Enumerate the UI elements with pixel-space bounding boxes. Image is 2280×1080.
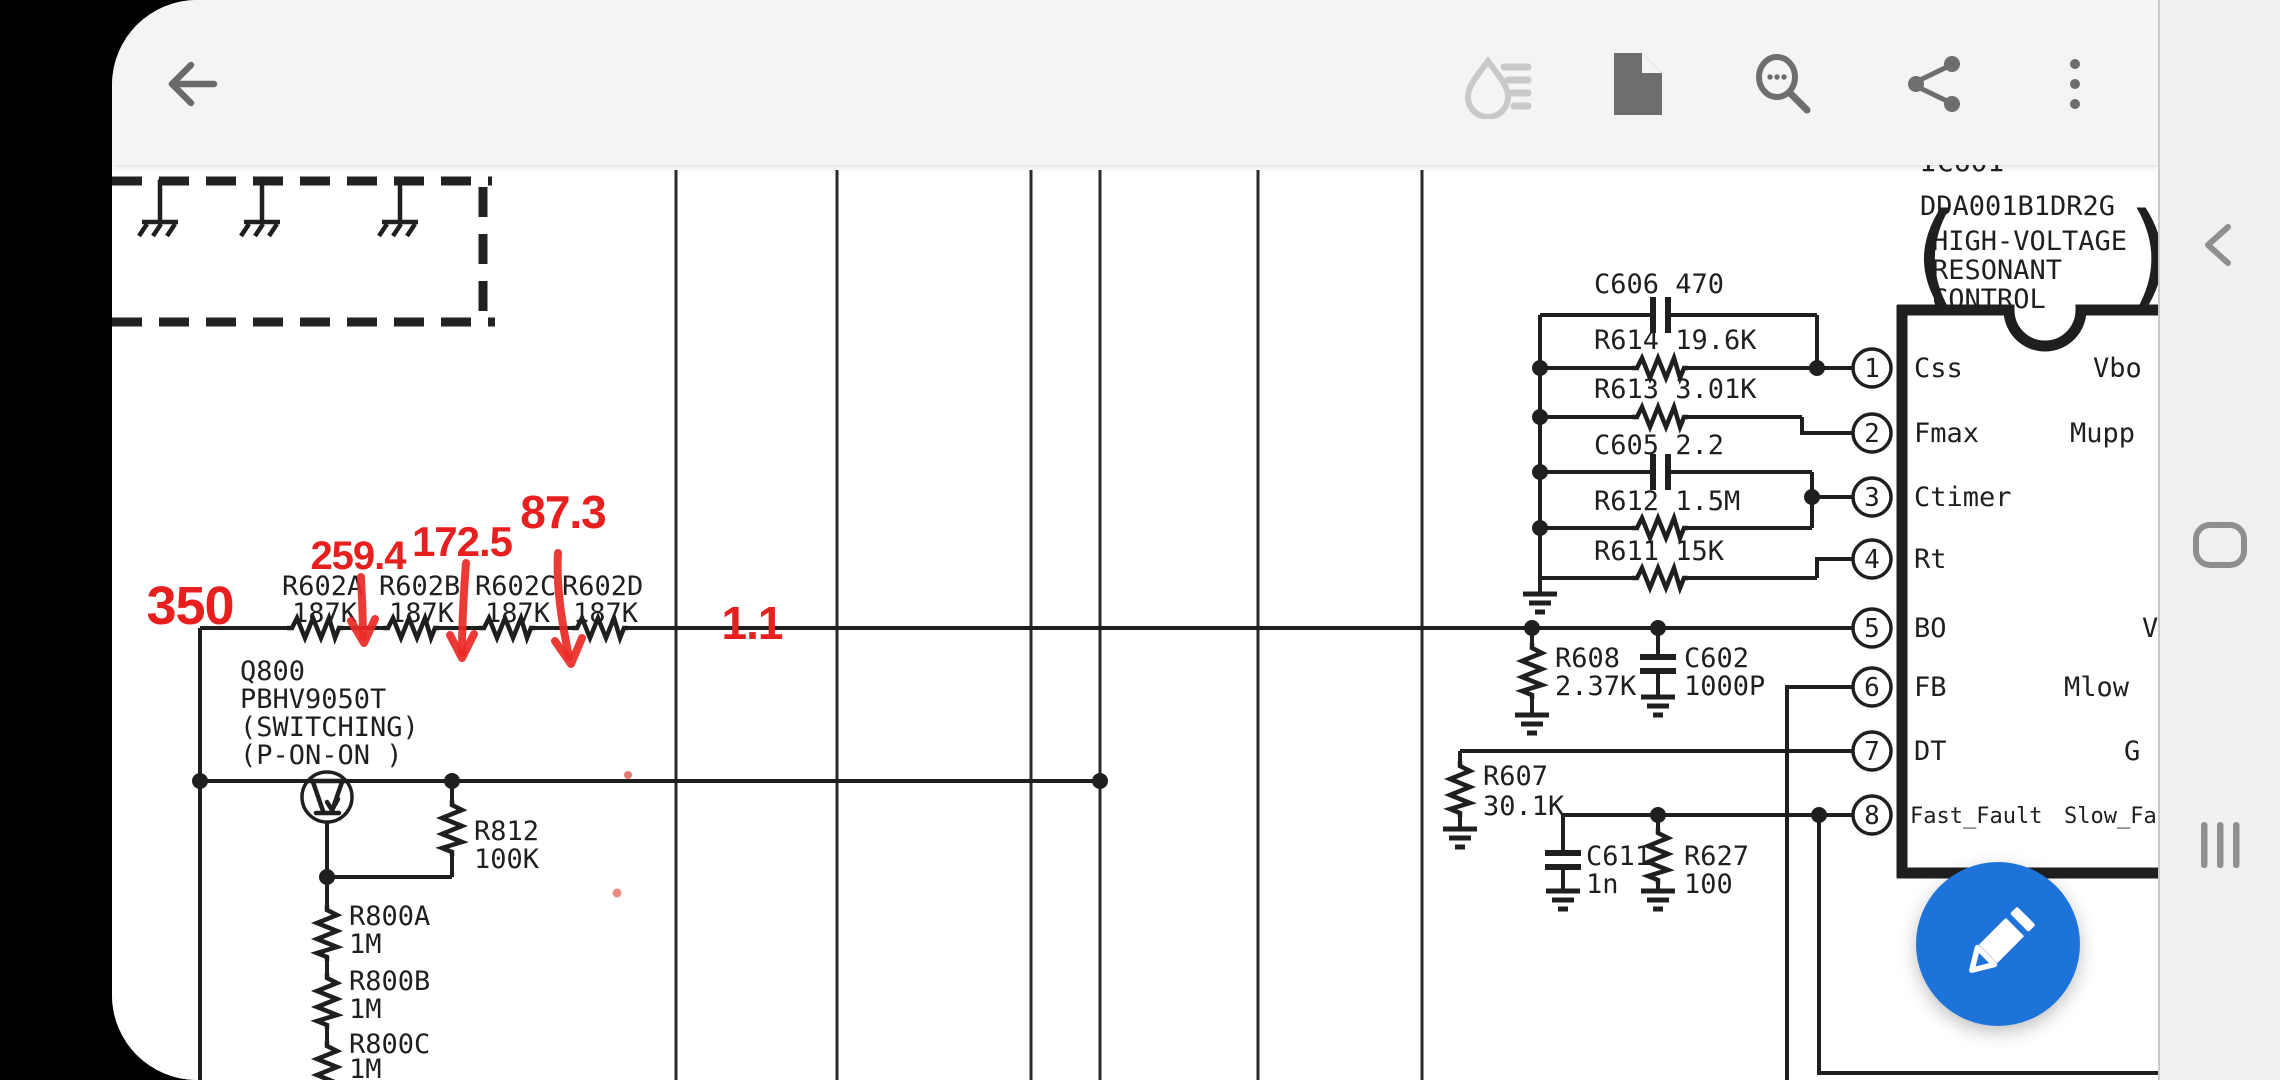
pin-4-number: 4: [1864, 545, 1880, 575]
ink-drop-icon: [1464, 49, 1534, 119]
pin-1-number: 1: [1864, 354, 1880, 384]
ground-icon: [1546, 891, 1580, 909]
search-icon: [1751, 52, 1815, 116]
r607-name: R607: [1483, 761, 1548, 792]
r800a-value: 1M: [349, 929, 382, 960]
r602a-value: 187K: [292, 598, 358, 629]
nav-back-button[interactable]: [2160, 185, 2280, 305]
ground-icon: [1443, 829, 1477, 847]
pin-7-name: DT: [1914, 736, 1947, 767]
more-vertical-icon: [2048, 53, 2102, 115]
pin-1-name: Css: [1914, 353, 1963, 384]
pin-5-number: 5: [1864, 614, 1880, 644]
pencil-icon: [1953, 899, 2043, 989]
red-value-1-1: 1.1: [722, 597, 783, 649]
pin-2-number: 2: [1864, 419, 1880, 449]
ic601-desc-3: CONTROL: [1932, 284, 2046, 315]
red-value-172: 172.5: [412, 518, 513, 565]
nav-back-icon: [2194, 219, 2246, 271]
ic601-header: IC601 DDA001B1DR2G ( ) HIGH-VOLTAGE RESO…: [1900, 165, 2160, 323]
r627-value: 100: [1684, 869, 1733, 900]
q800-type: (P-ON-ON ): [240, 740, 403, 771]
c606-label: C606 470: [1594, 269, 1724, 300]
ground-icon: [1523, 594, 1557, 612]
red-arrow-1: [361, 577, 363, 637]
system-nav-bar: [2158, 0, 2280, 1080]
overflow-menu-button[interactable]: [2027, 36, 2123, 132]
r800c-value: 1M: [349, 1054, 382, 1080]
r602d-value: 187K: [573, 598, 639, 629]
chassis-ground-icon: [379, 222, 418, 236]
pin-5-right-label: V: [2142, 613, 2158, 644]
r800b-name: R800B: [349, 966, 430, 997]
pin-8-name: Fast_Fault: [1910, 804, 2042, 829]
r607-value: 30.1K: [1483, 791, 1565, 822]
ic601-ref: IC601: [1920, 165, 2004, 178]
pin-7-right-label: G: [2124, 736, 2140, 767]
dashed-shield-box: [112, 181, 495, 322]
chassis-ground-icon: [241, 222, 280, 236]
red-arrow-2: [462, 563, 466, 653]
pin-6-right-label: Mlow: [2064, 672, 2130, 703]
r607-group: R607 30.1K: [1443, 751, 1853, 847]
red-pen-dot: [624, 771, 632, 779]
schematic-grid-lines: [676, 170, 1422, 1080]
q800-ref: Q800: [240, 656, 305, 687]
pin-6-number: 6: [1864, 673, 1880, 703]
back-button[interactable]: [145, 36, 241, 132]
c611-value: 1n: [1586, 869, 1619, 900]
r613-label: R613 3.01K: [1594, 374, 1757, 405]
q800-function: (SWITCHING): [240, 712, 419, 743]
pin-5-name: BO: [1914, 613, 1947, 644]
c602-value: 1000P: [1684, 671, 1765, 702]
c602-name: C602: [1684, 643, 1749, 674]
c611-name: C611: [1586, 841, 1651, 872]
pin-7-number: 7: [1864, 737, 1880, 767]
share-button[interactable]: [1887, 36, 1983, 132]
r800a-name: R800A: [349, 901, 430, 932]
r800-chain: R800A 1M R800B 1M R800C 1M: [317, 901, 430, 1080]
pin-1-right-label: Vbo: [2093, 353, 2142, 384]
ground-icon: [1641, 891, 1675, 909]
pin-3-name: Ctimer: [1914, 482, 2012, 513]
q800-transistor: Q800 PBHV9050T (SWITCHING) (P-ON-ON ): [200, 656, 1100, 905]
nav-recents-icon: [2194, 819, 2246, 871]
pin-6-name: FB: [1914, 672, 1947, 703]
edit-fab-button[interactable]: [1916, 862, 2080, 1026]
ic601-desc-2: RESONANT: [1932, 255, 2062, 286]
page-view-button[interactable]: [1588, 36, 1684, 132]
r612-label: R612 1.5M: [1594, 486, 1740, 517]
pdf-viewer-app: R602A R602B R602C R602D 187K 187K 187K 1…: [112, 0, 2280, 1080]
document-canvas[interactable]: R602A R602B R602C R602D 187K 187K 187K 1…: [112, 165, 2160, 1080]
nav-home-button[interactable]: [2160, 485, 2280, 605]
c605-label: C605 2.2: [1594, 430, 1724, 461]
ground-icon: [1641, 697, 1675, 715]
app-toolbar: [112, 0, 2160, 165]
pin-8-number: 8: [1864, 801, 1880, 831]
pin-2-right-label: Mupp: [2070, 418, 2135, 449]
q800-part: PBHV9050T: [240, 684, 386, 715]
r614-label: R614 19.6K: [1594, 325, 1757, 356]
ground-icon: [1515, 715, 1549, 733]
r812-resistor: R812 100K: [327, 781, 540, 877]
schematic-drawing: R602A R602B R602C R602D 187K 187K 187K 1…: [112, 165, 2160, 1080]
pin-2-name: Fmax: [1914, 418, 1979, 449]
share-icon: [1904, 53, 1966, 115]
pin-4-name: Rt: [1914, 544, 1947, 575]
pin-3-number: 3: [1864, 483, 1880, 513]
ic601-body: [1897, 305, 2160, 878]
red-value-350: 350: [146, 576, 233, 636]
red-pen-dot: [613, 889, 622, 898]
ic601-desc-1: HIGH-VOLTAGE: [1932, 226, 2127, 257]
r611-label: R611 15K: [1594, 536, 1725, 567]
r812-name: R812: [474, 816, 539, 847]
r608-c602-group: R608 2.37K C602 1000P: [1515, 628, 1765, 733]
document-icon: [1606, 51, 1666, 117]
nav-recents-button[interactable]: [2160, 785, 2280, 905]
chassis-ground-icon: [139, 222, 178, 236]
phone-screen: R602A R602B R602C R602D 187K 187K 187K 1…: [0, 0, 2280, 1080]
search-button[interactable]: [1735, 36, 1831, 132]
r608-name: R608: [1555, 643, 1620, 674]
back-arrow-icon: [162, 53, 224, 115]
r602c-value: 187K: [485, 598, 551, 629]
pin-8-right-label: Slow_Fa: [2064, 804, 2157, 829]
nav-home-icon: [2191, 520, 2249, 570]
pin-network: C606 470 R614 19.6K R613 3.01K C605 2.2 …: [1523, 269, 1853, 612]
red-value-87: 87.3: [520, 486, 606, 538]
r602b-value: 187K: [389, 598, 455, 629]
r812-value: 100K: [474, 844, 540, 875]
r627-name: R627: [1684, 841, 1749, 872]
red-value-259: 259.4: [310, 534, 407, 578]
r608-value: 2.37K: [1555, 671, 1637, 702]
c611-r627-group: C611 1n R627 100: [1545, 815, 1853, 909]
r800b-value: 1M: [349, 994, 382, 1025]
ink-visibility-button[interactable]: [1451, 36, 1547, 132]
